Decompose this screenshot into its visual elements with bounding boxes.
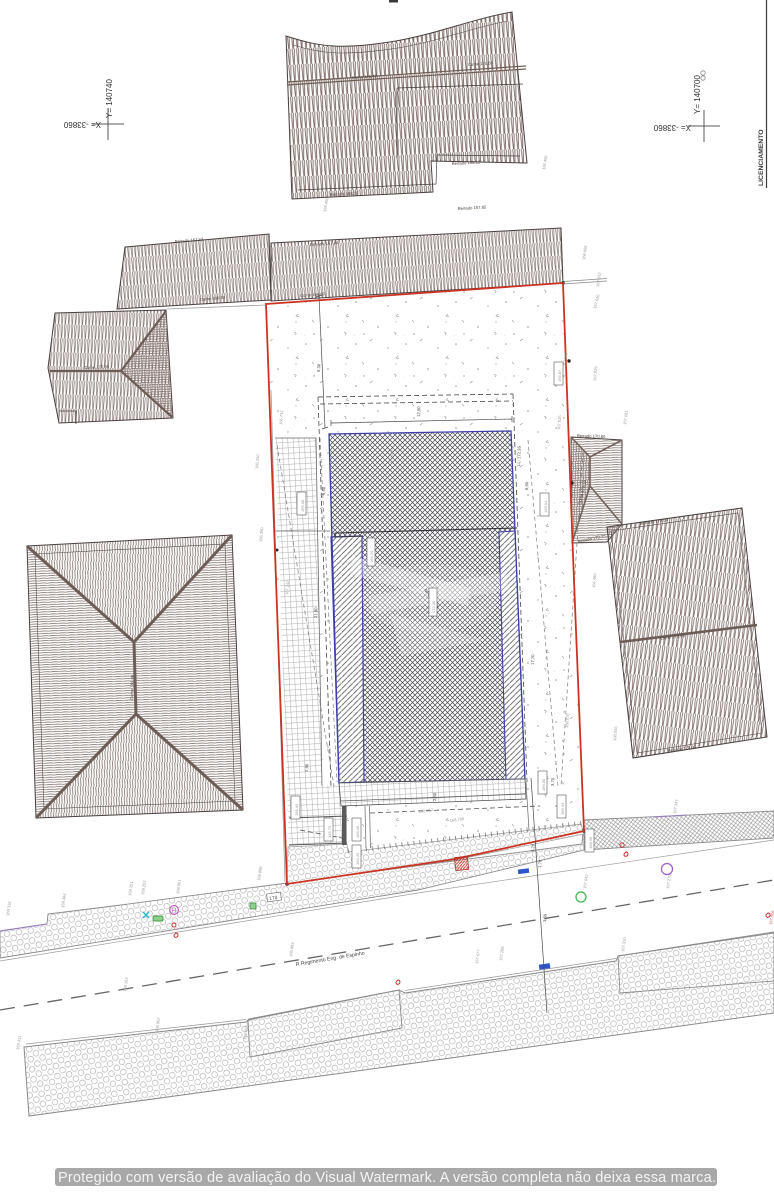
svg-text:Protegido com versão de avalia: Protegido com versão de avaliação do Vis… — [58, 1170, 716, 1186]
svg-text:3,70: 3,70 — [550, 777, 555, 786]
svg-text:172.35: 172.35 — [431, 600, 436, 613]
svg-text:X= -33860: X= -33860 — [653, 123, 691, 132]
svg-text:167.806: 167.806 — [768, 909, 774, 925]
svg-text:6,60: 6,60 — [524, 481, 529, 490]
svg-text:5,20: 5,20 — [530, 843, 536, 852]
svg-text:Beirado 170.60: Beirado 170.60 — [577, 433, 606, 439]
svg-text:7,60: 7,60 — [304, 763, 309, 772]
svg-text:166.43: 166.43 — [294, 803, 299, 816]
svg-text:Cume 170.95: Cume 170.95 — [84, 364, 110, 370]
svg-text:168.34: 168.34 — [560, 802, 565, 815]
svg-text:165.87: 165.87 — [557, 369, 562, 382]
svg-text:166.80: 166.80 — [541, 778, 546, 791]
svg-text:Cume 169.80: Cume 169.80 — [129, 674, 135, 700]
svg-text:2,50: 2,50 — [432, 792, 437, 801]
svg-text:165.70: 165.70 — [327, 825, 332, 838]
svg-text:166.45: 166.45 — [355, 825, 360, 838]
svg-text:166.20: 166.20 — [369, 550, 374, 563]
svg-text:166.08: 166.08 — [300, 499, 305, 512]
svg-text:1,70: 1,70 — [537, 859, 543, 868]
svg-text:LL: 172.35: LL: 172.35 — [516, 445, 522, 466]
svg-text:LICENCIAMENTO: LICENCIAMENTO — [758, 129, 765, 186]
svg-text:3,50: 3,50 — [542, 913, 548, 922]
svg-text:X= -33860: X= -33860 — [63, 120, 101, 129]
svg-text:178: 178 — [269, 895, 278, 902]
svg-text:12,50: 12,50 — [416, 406, 421, 417]
svg-text:H: H — [172, 908, 176, 914]
svg-text:Y= 140700: Y= 140700 — [693, 75, 702, 114]
svg-text:168.35: 168.35 — [588, 836, 593, 849]
svg-text:21,80: 21,80 — [313, 607, 318, 618]
svg-text:Y= 140740: Y= 140740 — [105, 79, 114, 118]
svg-text:9,30: 9,30 — [316, 363, 321, 372]
svg-text:166.04: 166.04 — [543, 500, 548, 513]
svg-text:6,60: 6,60 — [321, 486, 326, 495]
svg-text:166.43: 166.43 — [355, 852, 360, 865]
svg-text:17,70: 17,70 — [530, 654, 535, 665]
